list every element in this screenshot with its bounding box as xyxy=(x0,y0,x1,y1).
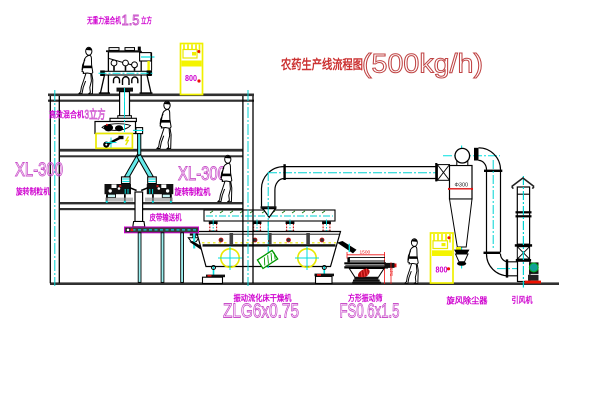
svg-text:XL-300: XL-300 xyxy=(15,160,63,181)
svg-text:800: 800 xyxy=(185,74,197,83)
svg-text:1500: 1500 xyxy=(360,250,371,256)
svg-text:旋风除尘器: 旋风除尘器 xyxy=(446,296,488,306)
svg-text:ZLG6x0.75: ZLG6x0.75 xyxy=(223,301,299,323)
svg-text:545: 545 xyxy=(389,268,395,276)
svg-text:皮带输送机: 皮带输送机 xyxy=(149,213,182,223)
svg-text:农药生产线流程图: 农药生产线流程图 xyxy=(280,57,363,72)
svg-text:800: 800 xyxy=(436,266,448,275)
svg-text:Φ300: Φ300 xyxy=(455,183,469,189)
svg-text:无重力混合机: 无重力混合机 xyxy=(86,16,121,26)
svg-text:3立方: 3立方 xyxy=(85,107,106,122)
svg-text:(500kg/h): (500kg/h) xyxy=(362,49,483,79)
svg-text:FS0.6x1.5: FS0.6x1.5 xyxy=(340,301,400,323)
svg-text:旋转制粒机: 旋转制粒机 xyxy=(15,187,50,197)
svg-text:旋转制粒机: 旋转制粒机 xyxy=(174,186,211,197)
svg-text:引风机: 引风机 xyxy=(512,295,533,305)
svg-text:XL-300: XL-300 xyxy=(178,164,226,185)
svg-text:立方: 立方 xyxy=(141,16,152,26)
svg-text:1.5: 1.5 xyxy=(122,12,140,29)
svg-text:高效混合机: 高效混合机 xyxy=(49,110,84,120)
